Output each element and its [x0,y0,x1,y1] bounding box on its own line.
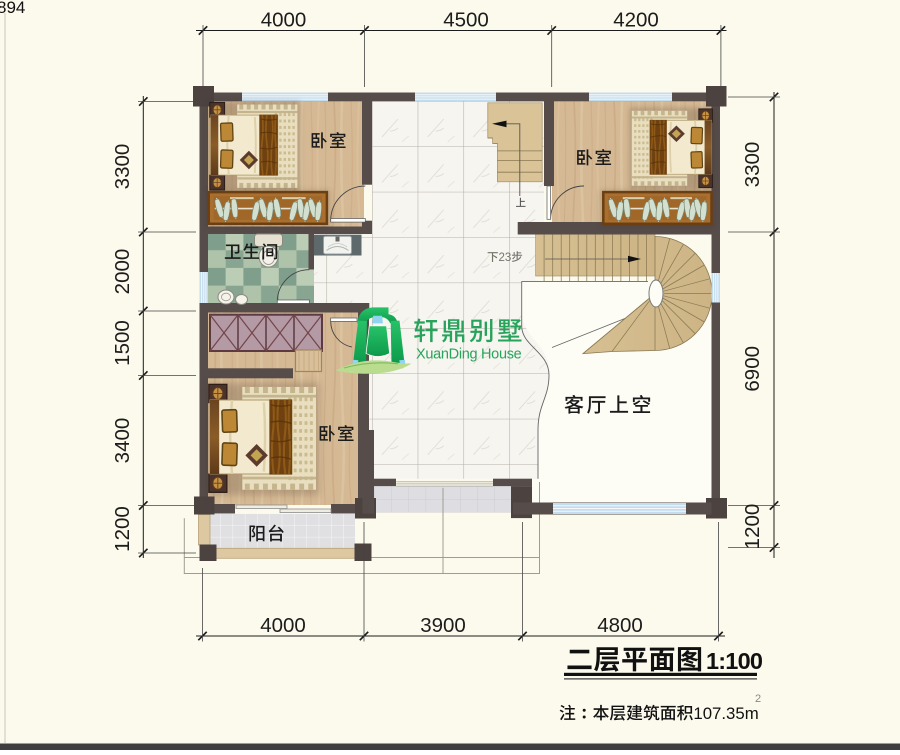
svg-text:4000: 4000 [260,614,306,637]
svg-text:4800: 4800 [597,614,643,637]
svg-text:894: 894 [0,0,25,17]
svg-text:4200: 4200 [613,9,659,32]
svg-text:2000: 2000 [111,249,134,295]
svg-text:3400: 3400 [111,418,134,464]
svg-text:6900: 6900 [741,346,764,392]
svg-text:XuanDing House: XuanDing House [416,347,522,363]
svg-text:2: 2 [755,693,761,705]
svg-text:107.35m: 107.35m [693,704,758,723]
svg-text:4000: 4000 [261,9,307,32]
svg-text:1:100: 1:100 [706,648,763,674]
svg-text:3900: 3900 [420,614,466,637]
svg-text:3300: 3300 [741,142,764,188]
svg-text:23: 23 [499,252,512,264]
svg-text:1500: 1500 [111,320,134,366]
svg-text:1200: 1200 [741,504,764,550]
svg-text:3300: 3300 [111,144,134,190]
svg-text:1200: 1200 [111,506,134,552]
svg-text:4500: 4500 [443,9,489,32]
